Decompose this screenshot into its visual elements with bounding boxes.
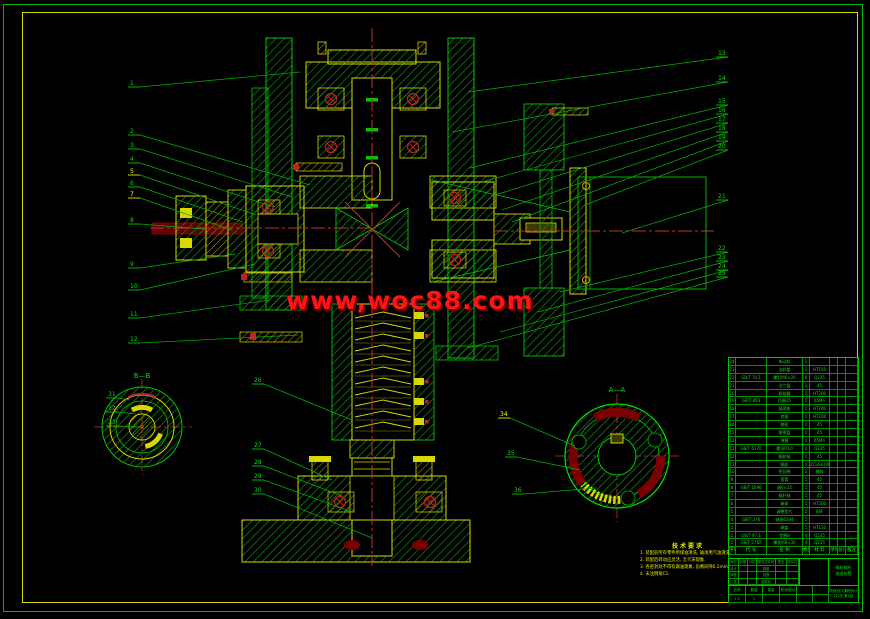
bom-cell: 2 — [803, 468, 810, 476]
bom-cell: 螺钉M6×20 — [767, 374, 803, 382]
bom-cell — [838, 500, 846, 508]
bom-cell: HT200 — [810, 413, 830, 421]
organization-box: 机械设计课程设计 共1张 第1张 — [829, 585, 858, 602]
bom-cell: GB/T 1096 — [736, 484, 767, 492]
title-block-blank-box — [799, 559, 829, 585]
callout-number: 2 — [130, 128, 134, 135]
bom-cell — [846, 429, 858, 437]
bom-cell — [830, 532, 838, 540]
bom-cell: HT150 — [810, 366, 830, 374]
bom-cell: 16 — [729, 421, 736, 429]
watermark-text: www,woc88.com — [286, 286, 534, 315]
leader-line — [622, 200, 728, 233]
bom-cell — [838, 524, 846, 532]
callout-number: 9 — [130, 261, 134, 268]
bom-cell — [838, 508, 846, 516]
bom-cell: 14 — [729, 437, 736, 445]
bom-cell: 1 — [803, 429, 810, 437]
bom-cell — [846, 476, 858, 484]
bom-cell — [736, 508, 767, 516]
bom-cell — [838, 484, 846, 492]
bom-cell: 45 — [810, 382, 830, 390]
bom-cell: 底座 — [767, 413, 803, 421]
bom-cell — [830, 382, 838, 390]
callout-number: 19 — [718, 134, 726, 141]
revision-grid: 标记处数分区更改文件号签名年月日设计校核审核批准工艺标准化 — [729, 559, 799, 585]
bom-cell — [830, 429, 838, 437]
bom-cell: 24 — [729, 358, 736, 366]
bom-cell: 21 — [729, 382, 736, 390]
bom-cell: 1 — [803, 461, 810, 469]
bom-cell: Q235 — [810, 374, 830, 382]
bom-cell: 垫圈8 — [767, 532, 803, 540]
bom-cell: 1 — [803, 484, 810, 492]
detail-view-right: A—A — [555, 386, 680, 522]
bom-cell: 电动机 — [767, 358, 803, 366]
callout-number: 24 — [718, 263, 726, 270]
callout-number: 10 — [130, 283, 138, 290]
bom-cell: 1 — [803, 390, 810, 398]
bom-cell — [846, 461, 858, 469]
bom-cell — [736, 390, 767, 398]
bom-cell: 代 号 — [736, 547, 767, 555]
bom-cell: 法兰盘 — [767, 382, 803, 390]
callout-number: 5 — [130, 168, 134, 175]
bom-cell: 1 — [803, 358, 810, 366]
bom-cell: GB/T 70.1 — [736, 374, 767, 382]
bom-cell: 蜗杆轴 — [767, 492, 803, 500]
bom-cell — [830, 468, 838, 476]
bom-cell: 调整垫片 — [767, 508, 803, 516]
bom-cell: GB/T 893 — [736, 397, 767, 405]
bom-cell: GB/T 97.1 — [736, 532, 767, 540]
bom-cell: 橡胶 — [810, 468, 830, 476]
bom-cell — [846, 500, 858, 508]
bom-cell: 键6×25 — [767, 484, 803, 492]
bom-cell: 1 — [803, 492, 810, 500]
bom-cell: ZCuSn10P1 — [810, 461, 830, 469]
leader-line — [538, 261, 728, 312]
bom-cell — [846, 524, 858, 532]
bom-cell: 45 — [810, 484, 830, 492]
bom-cell — [838, 421, 846, 429]
bom-cell: 轴承6204 — [767, 516, 803, 524]
bom-cell — [846, 421, 858, 429]
callout-number: 1 — [130, 80, 134, 87]
bom-cell: GB/T 6170 — [736, 445, 767, 453]
leader-line — [482, 114, 728, 182]
bom-cell: 1 — [803, 405, 810, 413]
bom-cell: HT200 — [810, 500, 830, 508]
bom-cell — [736, 429, 767, 437]
callout-number: 8 — [130, 217, 134, 224]
drawing-title-line2: 减速装置 — [829, 571, 858, 577]
bom-cell: 4 — [803, 539, 810, 547]
bom-cell — [830, 405, 838, 413]
bom-cell — [838, 492, 846, 500]
bom-cell: 11 — [729, 461, 736, 469]
bom-cell — [838, 366, 846, 374]
bom-cell: 轴承座 — [767, 405, 803, 413]
bom-cell: 19 — [729, 397, 736, 405]
bom-cell: 螺栓M8×30 — [767, 539, 803, 547]
bom-cell — [838, 539, 846, 547]
callout-number: 25 — [718, 270, 726, 277]
leader-line — [452, 82, 728, 132]
bom-cell: 1 — [803, 397, 810, 405]
bom-cell: 1 — [803, 421, 810, 429]
bom-cell: 8 — [729, 484, 736, 492]
bom-cell: 45 — [810, 492, 830, 500]
bom-cell — [838, 374, 846, 382]
bom-cell — [830, 421, 838, 429]
note-line: 3. 各密封处不得有漏油现象, 齿侧间隙0.2mm. — [640, 564, 736, 571]
bom-cell: HT150 — [810, 524, 830, 532]
bom-cell: 12 — [729, 453, 736, 461]
bom-cell — [830, 453, 838, 461]
bom-cell: 2 — [729, 532, 736, 540]
scale-qty-grid: 比例数量重量阶段标记1:21 — [729, 585, 829, 602]
bom-cell: 联轴器 — [767, 390, 803, 398]
bom-cell — [846, 539, 858, 547]
bom-cell: 螺母M10 — [767, 445, 803, 453]
bom-cell: 材 料 — [810, 547, 830, 555]
bom-cell — [838, 516, 846, 524]
bom-cell — [846, 437, 858, 445]
bom-cell — [838, 413, 846, 421]
bom-cell: GB/T 5782 — [736, 539, 767, 547]
bom-cell: 2 — [803, 516, 810, 524]
bom-cell: 比例 — [729, 586, 746, 595]
callout-number: 4 — [130, 156, 134, 163]
bom-cell: 20 — [729, 390, 736, 398]
bom-cell: 蜗轮 — [767, 461, 803, 469]
bom-cell — [830, 508, 838, 516]
callout-number: 29 — [254, 473, 262, 480]
bom-cell — [838, 468, 846, 476]
bom-cell: 1 — [803, 366, 810, 374]
bom-cell: 油封盖 — [767, 366, 803, 374]
bom-cell: 名 称 — [767, 547, 803, 555]
bom-cell: GB/T 276 — [736, 516, 767, 524]
note-line: 2. 装配后转动应灵活, 无卡滞现象. — [640, 557, 736, 564]
bom-cell — [830, 484, 838, 492]
bom-cell: Q235 — [810, 532, 830, 540]
bom-cell — [846, 366, 858, 374]
cad-sheet: B—B A—A 12345678910111213141516171819202… — [0, 0, 870, 619]
bom-cell — [830, 397, 838, 405]
bom-cell — [838, 390, 846, 398]
bom-cell: 1 — [803, 437, 810, 445]
bom-cell: Q235 — [810, 445, 830, 453]
bom-cell: 摩擦盘 — [767, 429, 803, 437]
callout-number: 11 — [130, 311, 138, 318]
bom-cell — [846, 382, 858, 390]
bom-cell — [813, 595, 829, 604]
bom-cell — [846, 492, 858, 500]
bom-cell: 15 — [729, 429, 736, 437]
bom-cell: 6 — [729, 500, 736, 508]
bom-cell — [838, 461, 846, 469]
callout-number: 20 — [718, 143, 726, 150]
callout-number: 27 — [254, 442, 262, 449]
parts-list-table: 24电动机123油封盖1HT15022GB/T 70.1螺钉M6×206Q235… — [728, 357, 859, 560]
bom-cell: 1:2 — [729, 595, 746, 604]
bom-cell — [830, 366, 838, 374]
bom-cell — [830, 390, 838, 398]
bom-cell — [830, 445, 838, 453]
bom-cell: 1 — [803, 524, 810, 532]
callout-number: 33 — [108, 419, 116, 426]
bom-cell — [846, 390, 858, 398]
bom-cell — [736, 366, 767, 374]
leader-line — [468, 57, 728, 92]
bom-cell — [838, 453, 846, 461]
bom-cell: 弹簧 — [767, 437, 803, 445]
bom-cell — [830, 374, 838, 382]
bom-cell — [846, 453, 858, 461]
bom-cell: 10 — [729, 468, 736, 476]
bom-cell: 棘轮 — [767, 421, 803, 429]
bom-cell: 1 — [803, 453, 810, 461]
callout-number: 23 — [718, 254, 726, 261]
bom-cell — [838, 445, 846, 453]
bom-cell: 备注 — [846, 547, 858, 555]
bom-cell — [736, 468, 767, 476]
bom-cell: 数量 — [746, 586, 763, 595]
bom-cell — [846, 484, 858, 492]
section-label-right: A—A — [609, 386, 626, 394]
bom-cell: 蜗轮轴 — [767, 453, 803, 461]
bom-cell — [736, 524, 767, 532]
bom-cell — [780, 595, 797, 604]
bom-cell — [810, 516, 830, 524]
bom-cell — [736, 421, 767, 429]
callout-number: 28 — [254, 459, 262, 466]
callout-number: 17 — [718, 116, 726, 123]
bom-cell — [797, 586, 813, 595]
bom-cell — [846, 397, 858, 405]
bom-cell — [830, 500, 838, 508]
bom-cell — [763, 595, 780, 604]
callout-number: 6 — [130, 180, 134, 187]
bom-cell — [846, 468, 858, 476]
bom-cell — [830, 358, 838, 366]
note-line: 4. 未注倒角C1. — [640, 571, 736, 578]
callout-number: 22 — [718, 245, 726, 252]
bom-cell — [736, 500, 767, 508]
bom-cell: 箱体 — [767, 500, 803, 508]
bom-cell — [838, 397, 846, 405]
bom-cell — [830, 492, 838, 500]
callout-number: 34 — [500, 411, 508, 418]
bom-cell: 数量 — [803, 547, 810, 555]
bom-cell — [838, 437, 846, 445]
bom-cell: 18 — [729, 405, 736, 413]
bom-cell — [830, 516, 838, 524]
bom-cell: 5 — [729, 508, 736, 516]
bom-cell: HT200 — [810, 390, 830, 398]
bom-cell: 2 — [803, 445, 810, 453]
bom-cell: 17 — [729, 413, 736, 421]
bom-cell — [830, 461, 838, 469]
bom-cell: 1 — [803, 476, 810, 484]
title-block: 标记处数分区更改文件号签名年月日设计校核审核批准工艺标准化 蜗轮蜗杆 减速装置 … — [728, 558, 859, 603]
bom-cell: 1 — [803, 413, 810, 421]
bom-cell: 08F — [810, 508, 830, 516]
bom-cell — [830, 524, 838, 532]
sheet-count: 共1张 第1张 — [829, 594, 858, 599]
bom-cell: 密封圈 — [767, 468, 803, 476]
bom-cell: Q235 — [810, 539, 830, 547]
callout-number: 26 — [254, 377, 262, 384]
bom-cell — [736, 461, 767, 469]
bom-cell: 7 — [729, 492, 736, 500]
bom-cell: 挡圈35 — [767, 397, 803, 405]
bom-cell: 阶段标记 — [780, 586, 797, 595]
bom-cell — [838, 476, 846, 484]
bom-cell — [846, 445, 858, 453]
bom-cell — [736, 358, 767, 366]
drawing-title: 蜗轮蜗杆 减速装置 — [829, 559, 858, 585]
note-line: 1. 装配前所有零件用煤油清洗, 轴承用汽油清洗. — [640, 550, 736, 557]
bom-cell: 45 — [810, 453, 830, 461]
section-label-left: B—B — [134, 372, 151, 380]
callout-number: 3 — [130, 142, 134, 149]
notes-title: 技术要求 — [640, 541, 736, 550]
bom-cell: 1 — [803, 500, 810, 508]
bom-cell: 45 — [810, 421, 830, 429]
bom-cell — [813, 586, 829, 595]
bom-cell: 45 — [810, 429, 830, 437]
callout-number: 21 — [718, 193, 726, 200]
bom-cell: 2 — [803, 508, 810, 516]
bom-cell — [736, 405, 767, 413]
leader-line — [470, 105, 728, 168]
bom-cell — [797, 595, 813, 604]
leader-line — [140, 264, 255, 290]
bom-cell — [736, 492, 767, 500]
bom-cell: 23 — [729, 366, 736, 374]
bom-cell — [736, 413, 767, 421]
bom-cell: 9 — [729, 476, 736, 484]
callout-number: 18 — [718, 125, 726, 132]
bom-cell — [830, 413, 838, 421]
bom-cell — [846, 516, 858, 524]
bom-cell — [846, 413, 858, 421]
callout-number: 35 — [507, 450, 515, 457]
bom-cell — [846, 405, 858, 413]
bom-cell — [830, 437, 838, 445]
bom-cell — [736, 476, 767, 484]
bom-cell: 45 — [810, 476, 830, 484]
bom-cell — [830, 476, 838, 484]
bom-cell: 13 — [729, 445, 736, 453]
bom-cell — [810, 358, 830, 366]
bom-cell — [846, 374, 858, 382]
bom-cell — [838, 532, 846, 540]
bom-cell: 6 — [803, 374, 810, 382]
callout-number: 15 — [718, 98, 726, 105]
bom-cell — [838, 358, 846, 366]
callout-number: 36 — [514, 487, 522, 494]
bom-cell: 3 — [729, 524, 736, 532]
leader-line — [510, 418, 575, 446]
bom-cell — [846, 508, 858, 516]
bom-cell: 1 — [803, 382, 810, 390]
callout-number: 7 — [130, 191, 134, 198]
bom-cell: 端盖 — [767, 524, 803, 532]
bom-cell — [736, 437, 767, 445]
bom-cell: 套筒 — [767, 476, 803, 484]
bom-cell — [736, 382, 767, 390]
bom-cell: 重量 — [763, 586, 780, 595]
bom-cell: HT200 — [810, 405, 830, 413]
bom-cell — [838, 382, 846, 390]
bom-cell: 单件 — [830, 547, 838, 555]
callout-number: 31 — [108, 391, 116, 398]
technical-notes: 技术要求 1. 装配前所有零件用煤油清洗, 轴承用汽油清洗.2. 装配后转动应灵… — [640, 541, 736, 578]
bom-cell: 总计 — [838, 547, 846, 555]
callout-number: 14 — [718, 75, 726, 82]
bom-cell: 1 — [746, 595, 763, 604]
callout-number: 12 — [130, 336, 138, 343]
bom-cell: 4 — [803, 532, 810, 540]
callout-number: 13 — [718, 50, 726, 57]
callout-number: 16 — [718, 107, 726, 114]
bom-cell: 4 — [729, 516, 736, 524]
callout-number: 32 — [108, 405, 116, 412]
bom-cell — [846, 532, 858, 540]
bom-cell — [846, 358, 858, 366]
bom-cell — [830, 539, 838, 547]
bom-cell: 65Mn — [810, 437, 830, 445]
bom-cell — [736, 453, 767, 461]
bom-cell — [838, 429, 846, 437]
bom-cell: 22 — [729, 374, 736, 382]
bom-cell — [838, 405, 846, 413]
callout-number: 30 — [254, 487, 262, 494]
bom-cell: 65Mn — [810, 397, 830, 405]
